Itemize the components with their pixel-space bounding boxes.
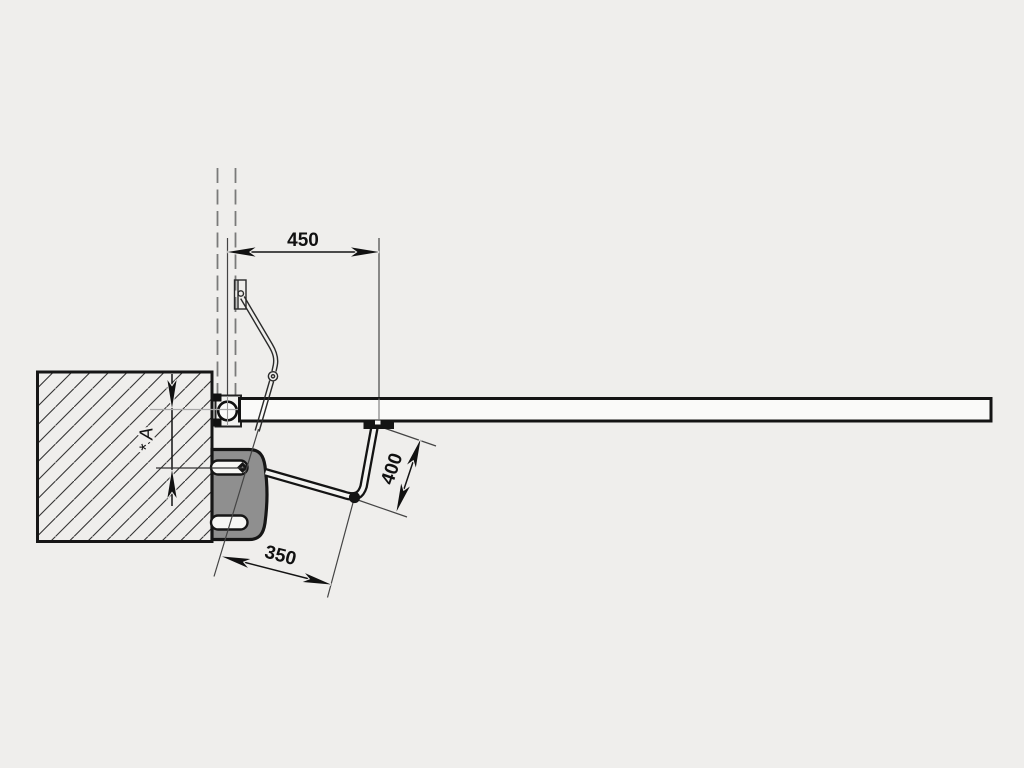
dimension-450-label: 450 <box>287 230 319 251</box>
hinge-lug-bottom <box>214 419 222 427</box>
hinge-lug-top <box>214 394 222 402</box>
installation-diagram-canvas: 450 * A <box>0 0 1024 768</box>
gate-leaf-bar <box>240 399 992 422</box>
installation-diagram: 450 * A <box>0 0 1024 768</box>
arm-elbow-joint <box>349 492 360 503</box>
wall-post-outline <box>38 372 213 542</box>
gate-fitting-notch <box>375 421 381 425</box>
gate-arm-fitting <box>364 421 395 430</box>
gate-leaf <box>240 399 992 422</box>
wall-post <box>38 372 213 542</box>
dimension-a-label: * A <box>136 428 157 452</box>
